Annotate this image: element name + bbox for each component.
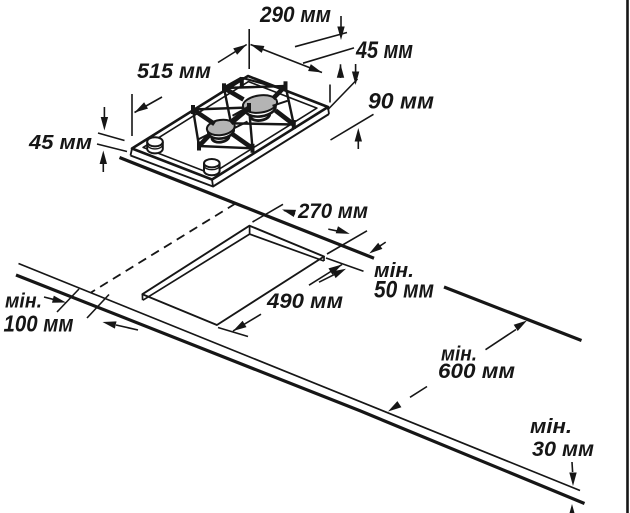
svg-text:мін.: мін. bbox=[5, 290, 42, 313]
svg-text:45 мм: 45 мм bbox=[28, 132, 92, 154]
svg-text:90 мм: 90 мм bbox=[368, 89, 434, 114]
svg-text:290 мм: 290 мм bbox=[259, 2, 331, 27]
svg-text:мін.: мін. bbox=[530, 415, 572, 438]
svg-text:50 мм: 50 мм bbox=[374, 277, 434, 304]
svg-text:45 мм: 45 мм bbox=[355, 37, 413, 64]
svg-text:490 мм: 490 мм bbox=[266, 289, 343, 313]
svg-text:270 мм: 270 мм bbox=[297, 199, 368, 223]
svg-text:515 мм: 515 мм bbox=[137, 60, 211, 83]
svg-text:30 мм: 30 мм bbox=[532, 438, 594, 461]
svg-text:100 мм: 100 мм bbox=[4, 311, 74, 337]
svg-text:600 мм: 600 мм bbox=[438, 360, 515, 383]
